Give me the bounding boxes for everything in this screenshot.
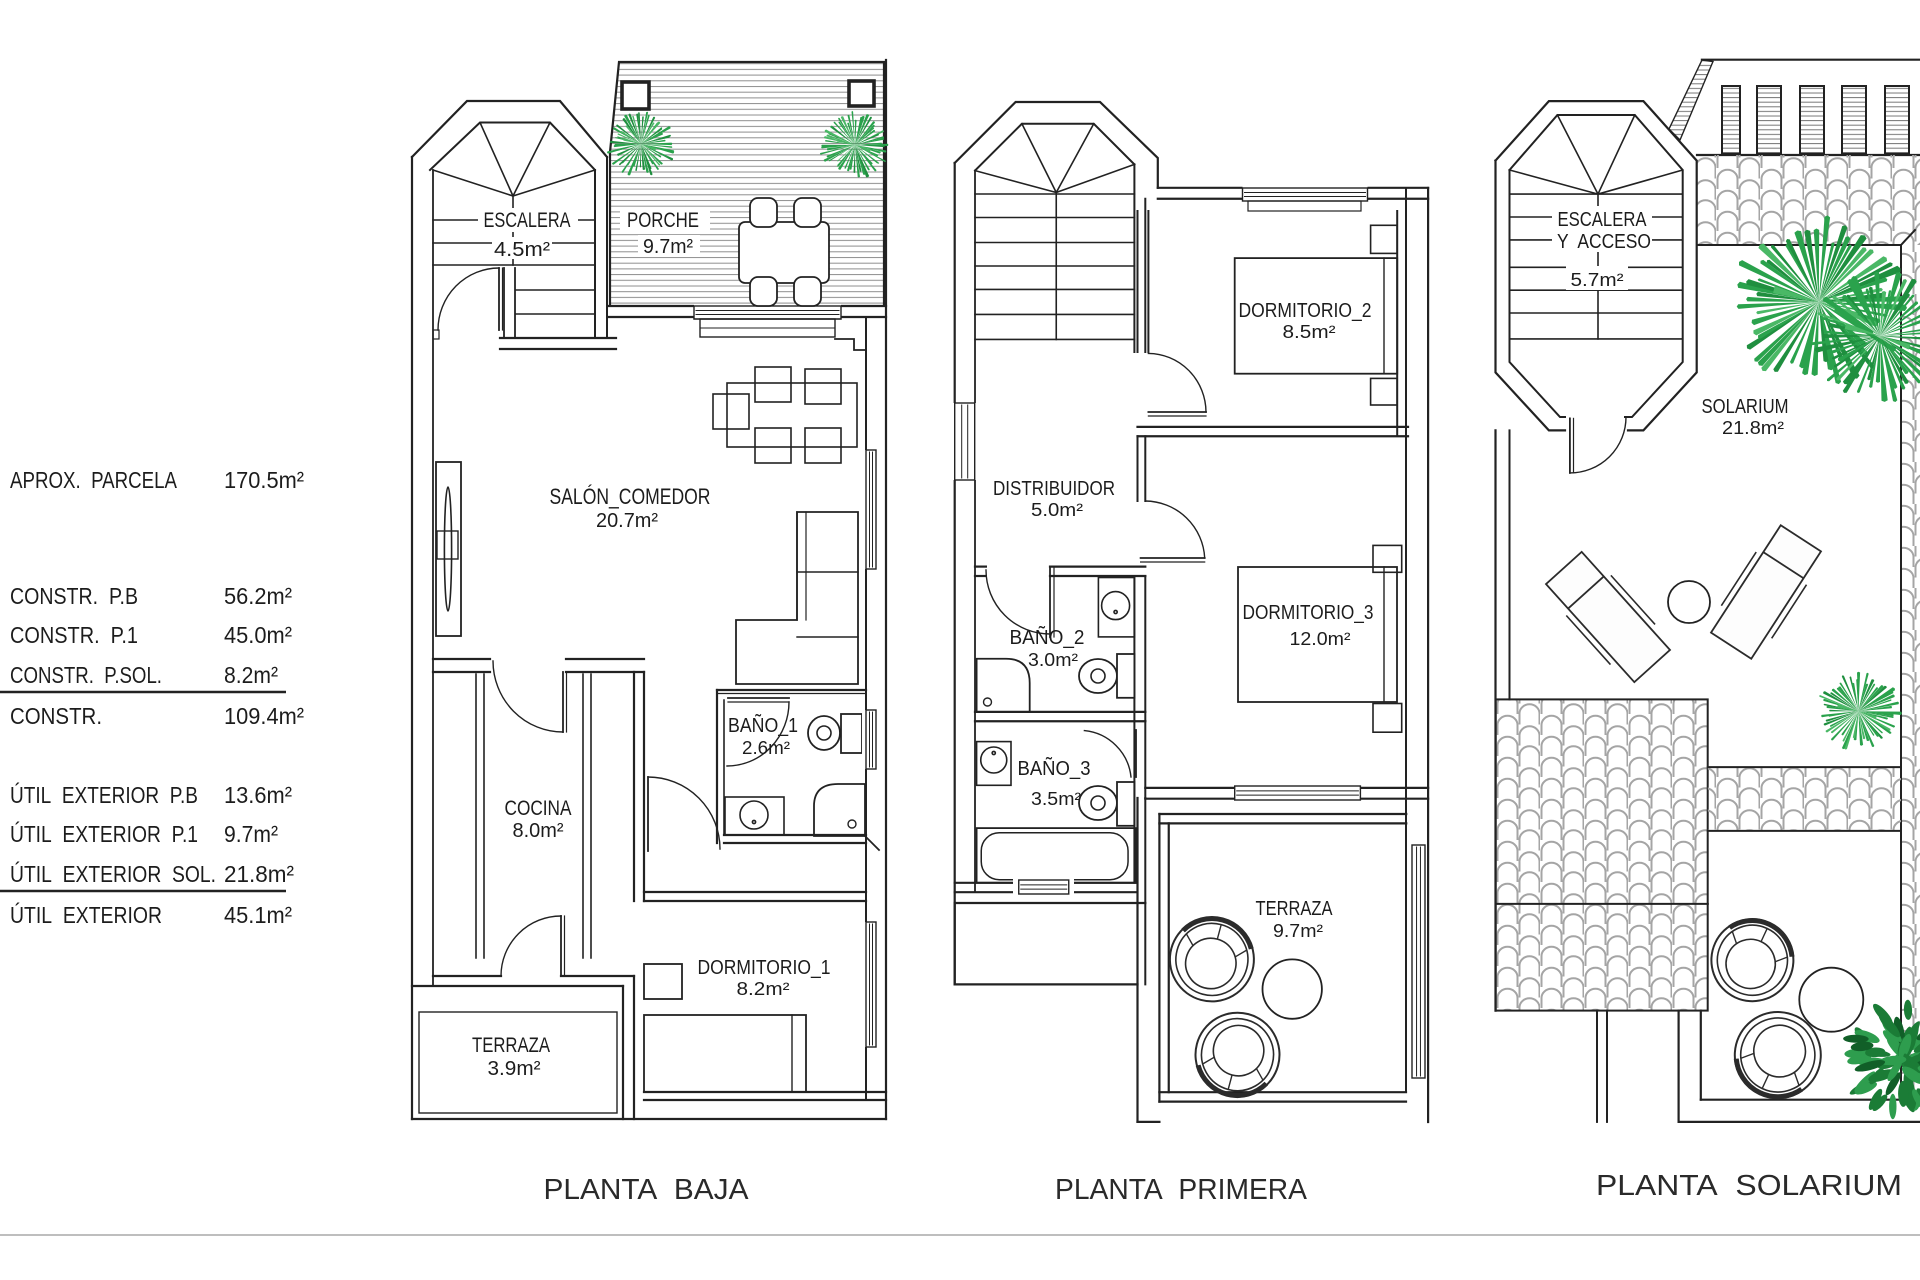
svg-text:SALÓN_COMEDOR: SALÓN_COMEDOR — [550, 484, 711, 509]
svg-text:CONSTR. P.1: CONSTR. P.1 — [10, 622, 138, 648]
svg-text:Y ACCESO: Y ACCESO — [1557, 231, 1651, 253]
svg-text:DORMITORIO_3: DORMITORIO_3 — [1243, 602, 1374, 624]
svg-text:170.5m²: 170.5m² — [224, 467, 304, 493]
svg-text:8.0m²: 8.0m² — [513, 820, 564, 842]
svg-text:COCINA: COCINA — [505, 797, 572, 820]
svg-text:PORCHE: PORCHE — [627, 209, 699, 232]
svg-text:4.5m²: 4.5m² — [494, 239, 550, 261]
svg-text:ÚTIL EXTERIOR: ÚTIL EXTERIOR — [10, 902, 162, 928]
svg-text:3.9m²: 3.9m² — [488, 1058, 541, 1080]
svg-text:CONSTR. P.SOL.: CONSTR. P.SOL. — [10, 662, 162, 688]
svg-text:DISTRIBUIDOR: DISTRIBUIDOR — [993, 478, 1115, 500]
svg-text:TERRAZA: TERRAZA — [472, 1034, 550, 1057]
svg-text:13.6m²: 13.6m² — [224, 782, 292, 808]
svg-text:21.8m²: 21.8m² — [224, 861, 294, 887]
svg-text:DORMITORIO_2: DORMITORIO_2 — [1239, 300, 1372, 322]
svg-text:CONSTR.: CONSTR. — [10, 703, 102, 729]
svg-text:5.0m²: 5.0m² — [1031, 500, 1083, 520]
svg-text:9.7m²: 9.7m² — [224, 821, 278, 847]
svg-text:BAÑO_3: BAÑO_3 — [1018, 756, 1091, 780]
svg-text:ESCALERA: ESCALERA — [1558, 209, 1648, 231]
svg-text:DORMITORIO_1: DORMITORIO_1 — [698, 957, 831, 979]
svg-text:PLANTA SOLARIUM: PLANTA SOLARIUM — [1596, 1170, 1902, 1202]
svg-text:PLANTA BAJA: PLANTA BAJA — [544, 1174, 750, 1206]
svg-text:2.6m²: 2.6m² — [742, 738, 790, 758]
svg-text:3.0m²: 3.0m² — [1028, 650, 1078, 670]
svg-text:APROX. PARCELA: APROX. PARCELA — [10, 467, 178, 493]
svg-text:5.7m²: 5.7m² — [1571, 270, 1624, 290]
svg-text:8.2m²: 8.2m² — [737, 979, 790, 999]
svg-text:PLANTA PRIMERA: PLANTA PRIMERA — [1055, 1174, 1308, 1206]
svg-text:45.0m²: 45.0m² — [224, 622, 292, 648]
svg-text:ESCALERA: ESCALERA — [484, 209, 571, 232]
svg-text:45.1m²: 45.1m² — [224, 902, 292, 928]
svg-text:8.5m²: 8.5m² — [1283, 322, 1336, 342]
svg-text:20.7m²: 20.7m² — [596, 510, 658, 532]
svg-text:8.2m²: 8.2m² — [224, 662, 278, 688]
svg-text:BAÑO_2: BAÑO_2 — [1010, 625, 1085, 649]
svg-text:56.2m²: 56.2m² — [224, 583, 292, 609]
svg-text:3.5m²: 3.5m² — [1031, 789, 1081, 809]
svg-text:ÚTIL EXTERIOR P.1: ÚTIL EXTERIOR P.1 — [10, 821, 198, 847]
svg-text:12.0m²: 12.0m² — [1290, 629, 1351, 649]
svg-text:SOLARIUM: SOLARIUM — [1702, 396, 1789, 418]
svg-text:21.8m²: 21.8m² — [1722, 418, 1784, 438]
svg-text:109.4m²: 109.4m² — [224, 703, 304, 729]
svg-text:TERRAZA: TERRAZA — [1256, 898, 1334, 920]
svg-text:BAÑO_1: BAÑO_1 — [728, 713, 798, 737]
svg-text:9.7m²: 9.7m² — [643, 236, 693, 258]
svg-text:9.7m²: 9.7m² — [1273, 921, 1323, 941]
svg-text:ÚTIL EXTERIOR SOL.: ÚTIL EXTERIOR SOL. — [10, 861, 216, 887]
svg-text:CONSTR. P.B: CONSTR. P.B — [10, 583, 138, 609]
svg-text:ÚTIL EXTERIOR P.B: ÚTIL EXTERIOR P.B — [10, 782, 198, 808]
